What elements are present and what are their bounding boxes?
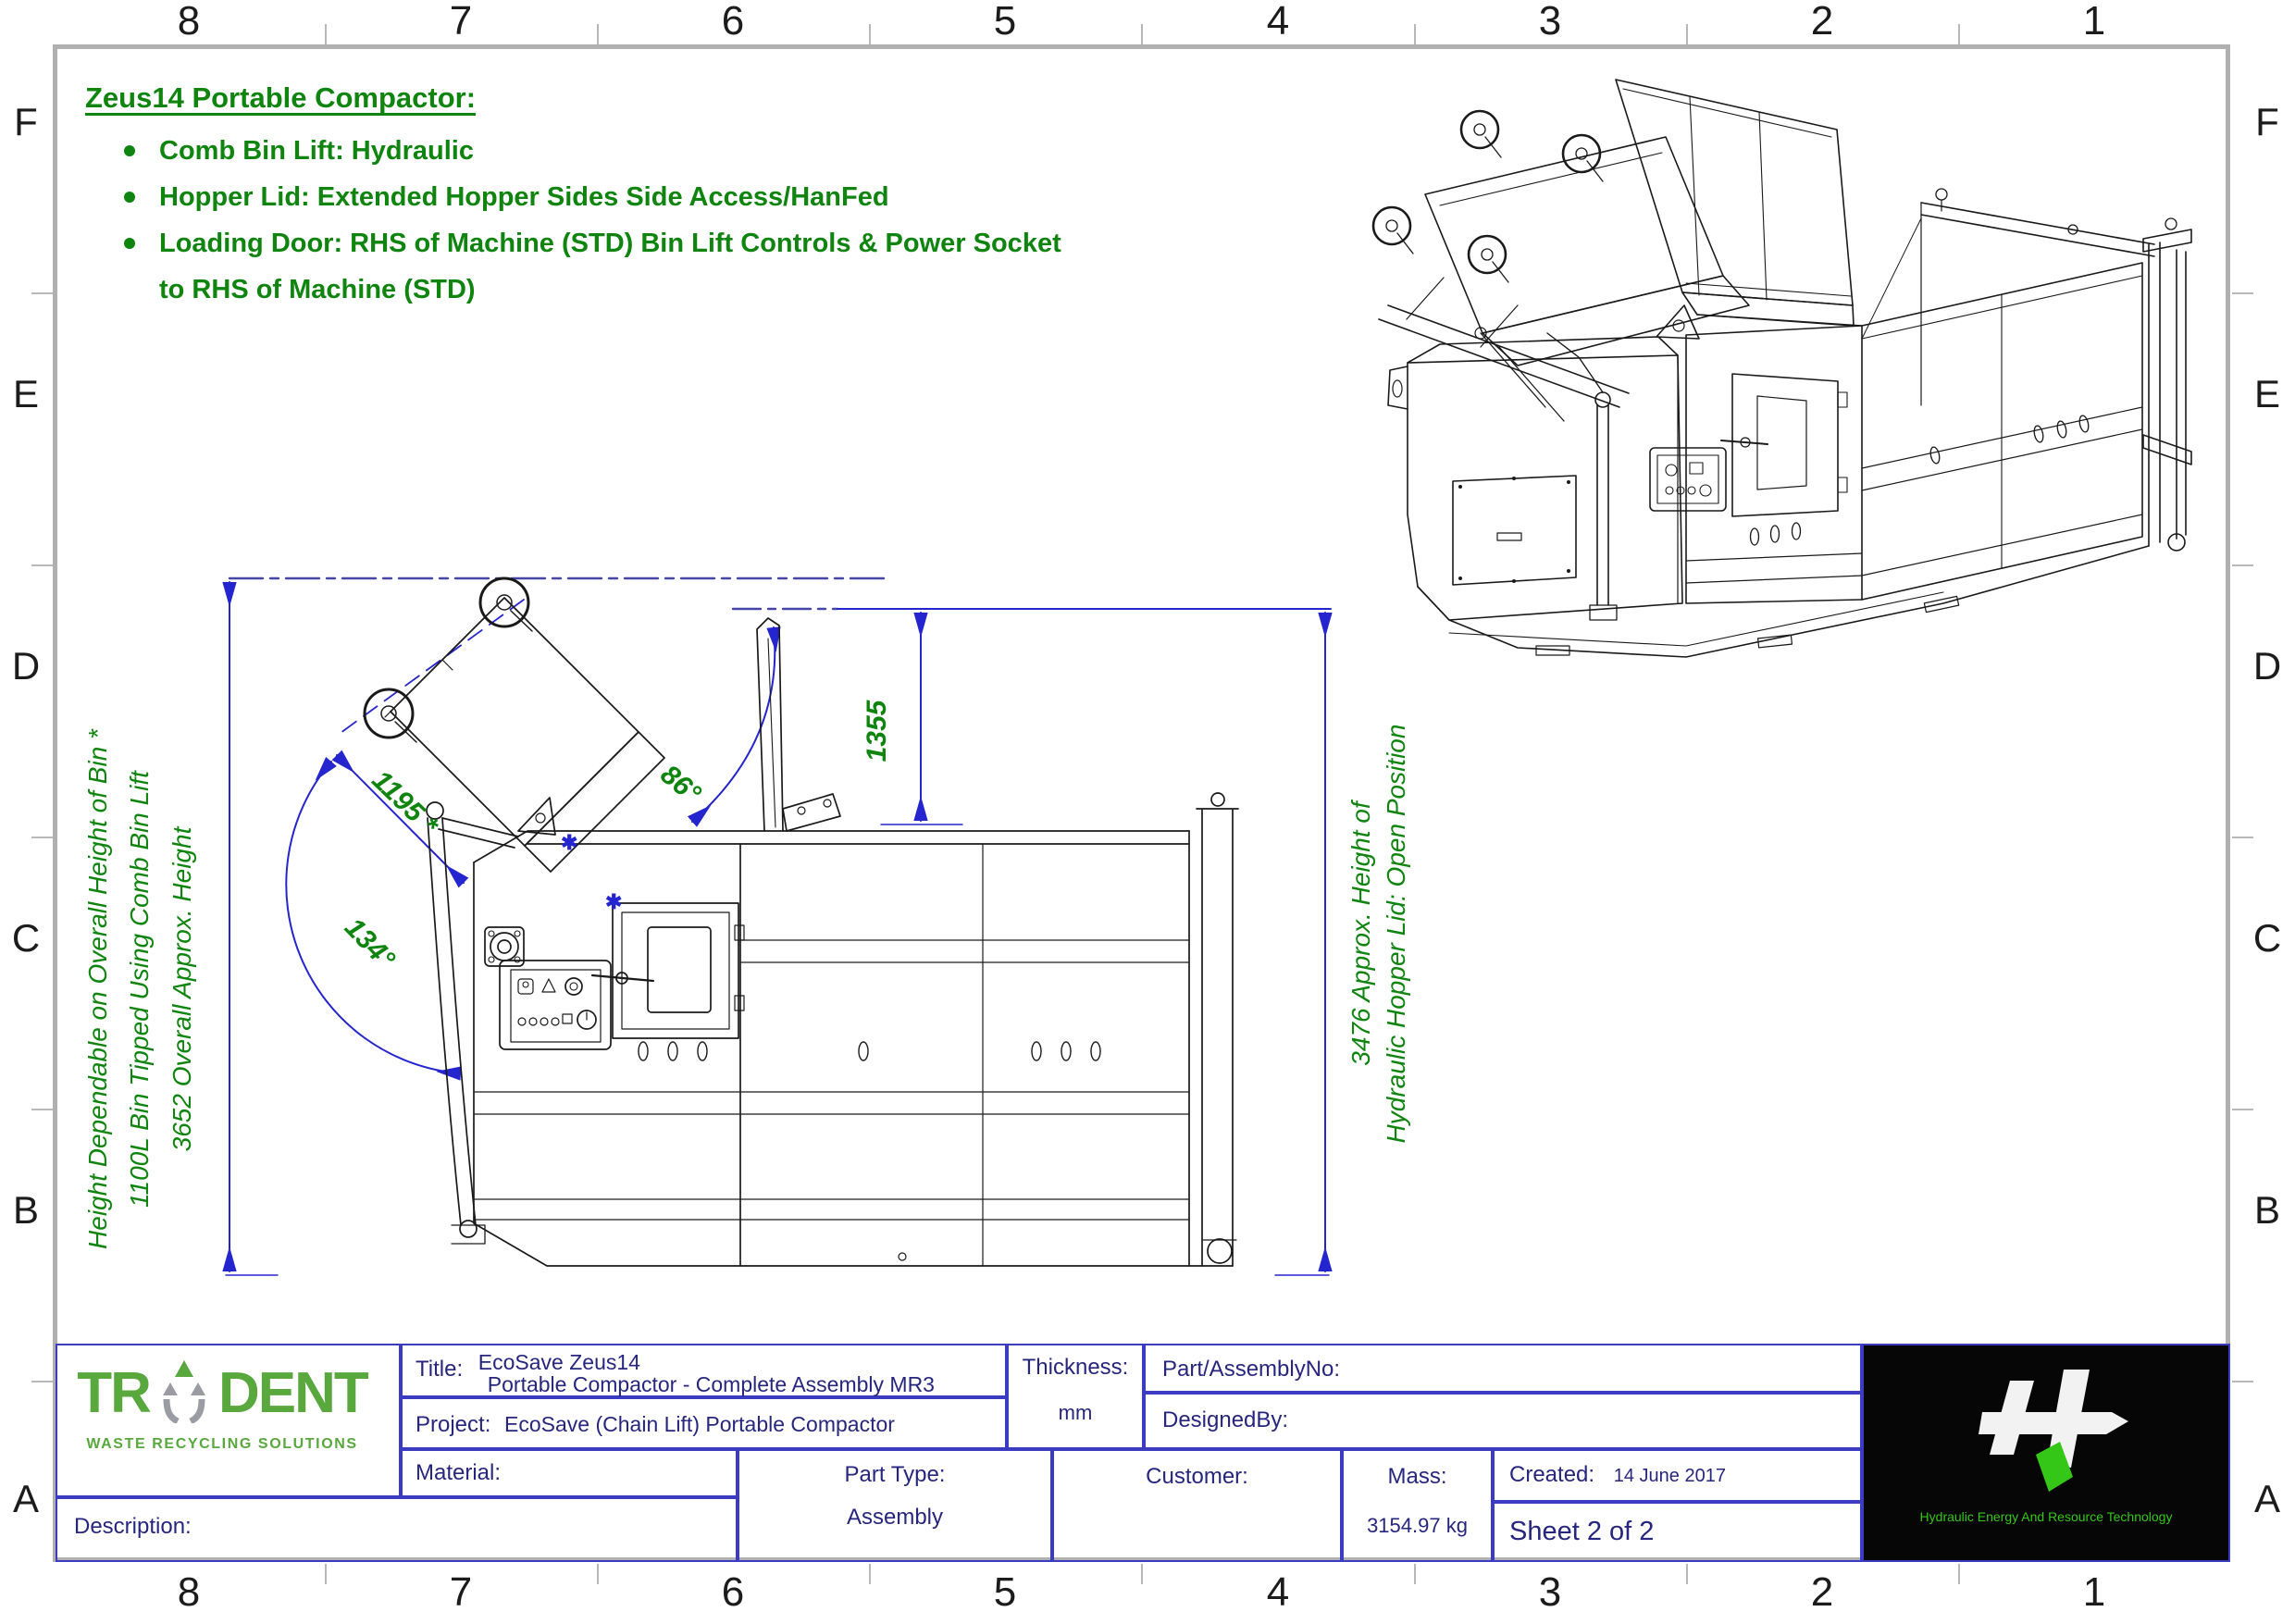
dim-point-marker: ✱	[561, 831, 577, 855]
drawing-sheet: 8 7 6 5 4 3 2 1 8 7 6 5 4 3 2 1 F E D C …	[0, 0, 2295, 1624]
titleblock-logo-cell: TR DENT WASTE RECYCLING SOLUTIONS	[56, 1344, 401, 1497]
project-value: EcoSave (Chain Lift) Portable Compactor	[504, 1412, 895, 1436]
note-lid-open-height-1: 3476 Approx. Height of	[1346, 776, 1376, 1091]
titleblock-title-cell: Title: EcoSave Zeus14 Portable Compactor…	[401, 1344, 1007, 1397]
note-overall-height: 3652 Overall Approx. Height	[167, 795, 197, 1184]
customer-label: Customer:	[1054, 1464, 1340, 1490]
trident-logo-text: TR	[77, 1364, 150, 1423]
titleblock-created-cell: Created: 14 June 2017	[1493, 1449, 1862, 1502]
description-label: Description:	[74, 1514, 192, 1539]
note-bin-height: Height Dependable on Overall Height of B…	[83, 665, 113, 1313]
thickness-label: Thickness:	[1009, 1355, 1142, 1381]
title-label: Title:	[416, 1357, 463, 1382]
note-lid-open-height-2: Hydraulic Hopper Lid: Open Position	[1382, 684, 1411, 1184]
titleblock-sheet-cell: Sheet 2 of 2	[1493, 1502, 1862, 1562]
titleblock-parttype-cell: Part Type: Assembly	[738, 1449, 1052, 1562]
parttype-value: Assembly	[739, 1505, 1050, 1531]
titleblock-description-cell: Description:	[56, 1497, 738, 1562]
mass-label: Mass:	[1344, 1464, 1491, 1490]
titleblock-material-cell: Material:	[401, 1449, 738, 1497]
created-label: Created:	[1509, 1462, 1594, 1487]
mass-value: 3154.97 kg	[1344, 1514, 1491, 1538]
titleblock-thickness-cell: Thickness: mm	[1007, 1344, 1144, 1449]
trident-arrows-icon	[150, 1358, 218, 1423]
material-label: Material:	[416, 1460, 501, 1485]
hert-logo-panel: Hydraulic Energy And Resource Technology	[1862, 1344, 2230, 1562]
trident-logo-subtitle: WASTE RECYCLING SOLUTIONS	[57, 1436, 387, 1453]
hert-logo-tagline: Hydraulic Energy And Resource Technology	[1920, 1509, 2173, 1524]
titleblock-project-cell: Project: EcoSave (Chain Lift) Portable C…	[401, 1397, 1007, 1449]
titleblock-mass-cell: Mass: 3154.97 kg	[1342, 1449, 1493, 1562]
trident-logo: TR DENT WASTE RECYCLING SOLUTIONS	[57, 1345, 387, 1488]
designedby-label: DesignedBy:	[1162, 1407, 1288, 1432]
note-bin-tipped: 1100L Bin Tipped Using Comb Bin Lift	[125, 730, 155, 1248]
titleblock-customer-cell: Customer:	[1052, 1449, 1342, 1562]
dim-label-lid-height: 1355	[857, 666, 898, 796]
titleblock-designedby-cell: DesignedBy:	[1144, 1393, 1862, 1449]
thickness-value: mm	[1009, 1401, 1142, 1425]
dim-point-marker: ✱	[605, 890, 622, 914]
parttype-label: Part Type:	[739, 1462, 1050, 1488]
titleblock-partno-cell: Part/AssemblyNo:	[1144, 1344, 1862, 1393]
trident-logo-text: DENT	[218, 1364, 367, 1423]
title-value-line2: Portable Compactor - Complete Assembly M…	[488, 1373, 935, 1395]
hert-logo-icon: Hydraulic Energy And Resource Technology	[1864, 1345, 2228, 1560]
project-label: Project:	[416, 1412, 490, 1437]
title-value-line1: EcoSave Zeus14	[478, 1351, 935, 1373]
partno-label: Part/AssemblyNo:	[1162, 1357, 1340, 1382]
created-value: 14 June 2017	[1614, 1466, 1726, 1486]
sheet-number: Sheet 2 of 2	[1509, 1517, 1654, 1546]
